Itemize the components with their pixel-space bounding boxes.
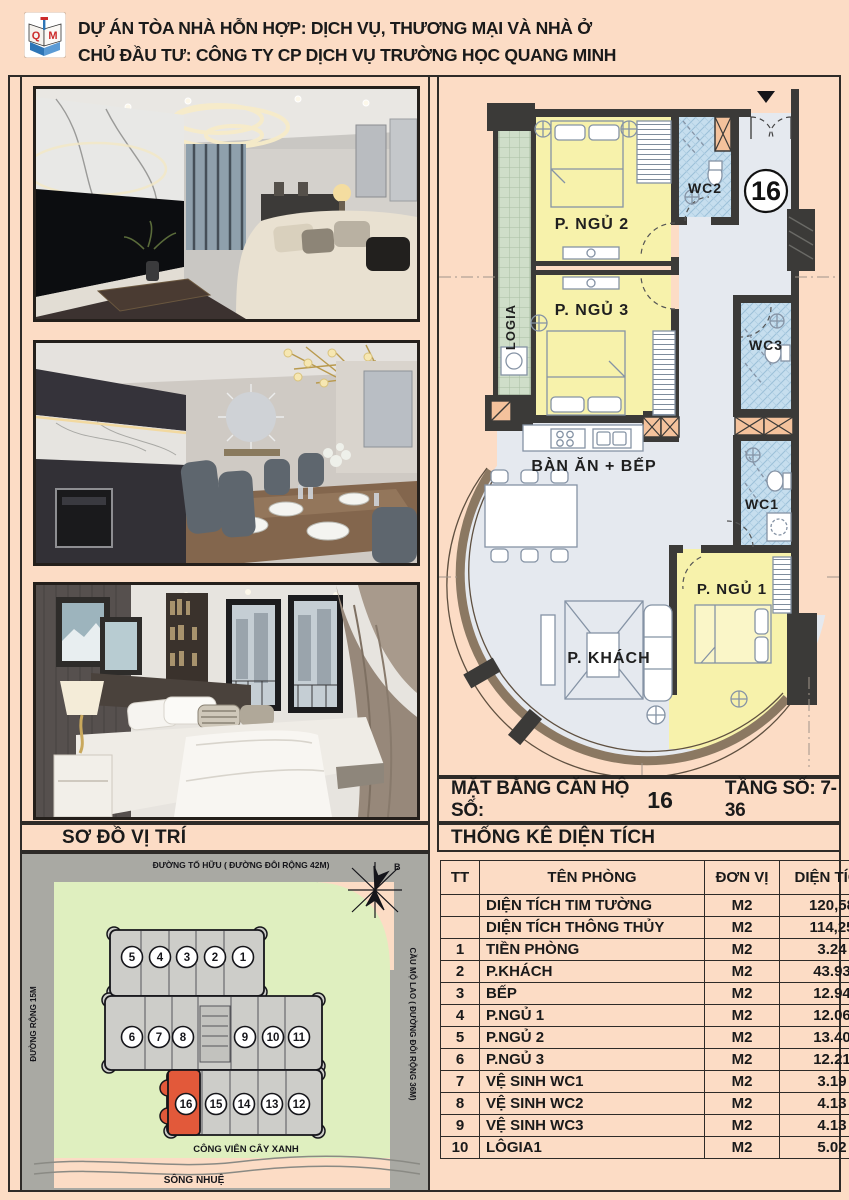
table-cell: 8 (441, 1093, 480, 1115)
plan-caption-label: MẶT BẰNG CĂN HỘ SỐ: (451, 778, 637, 822)
table-cell: M2 (705, 1049, 780, 1071)
photo-bedroom (33, 582, 420, 820)
table-cell: M2 (705, 1005, 780, 1027)
room-label-bedroom3: P. NGỦ 3 (555, 300, 629, 319)
unit-number-11: 11 (293, 1032, 306, 1044)
table-row: 5P.NGỦ 2M213.40 (441, 1027, 849, 1049)
unit-number-8: 8 (180, 1032, 187, 1044)
street-top-label: ĐƯỜNG TỐ HỮU ( ĐƯỜNG ĐÔI RỘNG 42M) (153, 859, 330, 870)
table-row: 1TIỀN PHÒNGM23.24 (441, 939, 849, 961)
project-title: DỰ ÁN TÒA NHÀ HỖN HỢP: DỊCH VỤ, THƯƠNG M… (78, 18, 592, 39)
room-label-bedroom2: P. NGỦ 2 (555, 214, 629, 233)
table-cell: M2 (705, 939, 780, 961)
table-cell: 10 (441, 1137, 480, 1159)
river-label: SÔNG NHUỆ (164, 1173, 225, 1186)
table-cell: LÔGIA1 (480, 1137, 705, 1159)
table-cell: DIỆN TÍCH THÔNG THỦY (480, 917, 705, 939)
stats-title-bar: THỐNG KÊ DIỆN TÍCH (437, 823, 841, 852)
logo-graphic: Q M (24, 12, 66, 58)
unit-number-10: 10 (267, 1032, 280, 1044)
table-cell: 5 (441, 1027, 480, 1049)
plan-caption-unit: 16 (647, 787, 673, 814)
table-cell: 3 (441, 983, 480, 1005)
table-cell: P.NGỦ 1 (480, 1005, 705, 1027)
col-header-room: TÊN PHÒNG (480, 861, 705, 895)
unit-number-1: 1 (240, 952, 247, 964)
table-cell: 9 (441, 1115, 480, 1137)
table-row: 6P.NGỦ 3M212.21 (441, 1049, 849, 1071)
table-row: DIỆN TÍCH TIM TƯỜNGM2120,58 (441, 895, 849, 917)
table-row: 7VỆ SINH WC1M23.19 (441, 1071, 849, 1093)
unit-number-14: 14 (238, 1099, 251, 1111)
table-cell: 4.13 (780, 1093, 849, 1115)
table-cell: P.KHÁCH (480, 961, 705, 983)
stat-table-wrap: TT TÊN PHÒNG ĐƠN VỊ DIỆN TÍCH DIỆN TÍCH … (440, 860, 832, 1159)
room-label-living: P. KHÁCH (567, 648, 650, 667)
site-map-drawing: B (22, 854, 428, 1190)
unit-badge-number: 16 (751, 176, 781, 206)
unit-number-5: 5 (129, 952, 136, 964)
floor-plan-drawing: 16 P. NGỦ 2 P. NGỦ 3 WC2 WC3 WC1 BÀN ĂN … (439, 77, 839, 775)
col-header-unit: ĐƠN VỊ (705, 861, 780, 895)
logo-letter-m: M (48, 30, 57, 42)
table-cell: 114,25 (780, 917, 849, 939)
stat-table: TT TÊN PHÒNG ĐƠN VỊ DIỆN TÍCH DIỆN TÍCH … (440, 860, 849, 1159)
unit-number-16: 16 (180, 1099, 193, 1111)
table-cell: 6 (441, 1049, 480, 1071)
table-cell: VỆ SINH WC1 (480, 1071, 705, 1093)
unit-number-9: 9 (242, 1032, 248, 1044)
room-label-logia: LOGIA (503, 304, 518, 350)
photo-kitchen-dining (33, 340, 420, 566)
table-row: 10LÔGIA1M25.02 (441, 1137, 849, 1159)
room-label-wc2: WC2 (688, 180, 722, 196)
table-cell: VỆ SINH WC3 (480, 1115, 705, 1137)
table-cell: 1 (441, 939, 480, 961)
table-cell: M2 (705, 917, 780, 939)
street-left-label: ĐƯỜNG RỘNG 15M (29, 986, 38, 1062)
table-cell: 2 (441, 961, 480, 983)
table-cell: M2 (705, 895, 780, 917)
table-row: 9VỆ SINH WC3M24.13 (441, 1115, 849, 1137)
company-logo: Q M (24, 12, 66, 58)
site-map-title: SƠ ĐỒ VỊ TRÍ (62, 827, 186, 849)
park-label: CÔNG VIÊN CÂY XANH (193, 1143, 299, 1155)
room-label-wc3: WC3 (749, 337, 783, 353)
table-cell: 4 (441, 1005, 480, 1027)
table-cell: 43.93 (780, 961, 849, 983)
table-cell: VỆ SINH WC2 (480, 1093, 705, 1115)
unit-number-15: 15 (210, 1099, 223, 1111)
unit-number-12: 12 (293, 1099, 306, 1111)
room-label-bedroom1: P. NGỦ 1 (697, 580, 767, 598)
table-cell: 13.40 (780, 1027, 849, 1049)
unit-number-7: 7 (156, 1032, 162, 1044)
investor-line: CHỦ ĐẦU TƯ: CÔNG TY CP DỊCH VỤ TRƯỜNG HỌ… (78, 45, 616, 66)
table-cell: 3.24 (780, 939, 849, 961)
floor-plan-panel: 16 P. NGỦ 2 P. NGỦ 3 WC2 WC3 WC1 BÀN ĂN … (437, 75, 841, 777)
stat-table-header-row: TT TÊN PHÒNG ĐƠN VỊ DIỆN TÍCH (441, 861, 849, 895)
table-cell: BẾP (480, 983, 705, 1005)
room-label-dining-kitchen: BÀN ĂN + BẾP (531, 456, 656, 475)
unit-number-3: 3 (184, 952, 190, 964)
table-cell (441, 917, 480, 939)
col-header-area: DIỆN TÍCH (780, 861, 849, 895)
unit-number-13: 13 (266, 1099, 279, 1111)
stats-title: THỐNG KÊ DIỆN TÍCH (451, 827, 655, 849)
table-cell: M2 (705, 983, 780, 1005)
table-cell: 12.94 (780, 983, 849, 1005)
table-cell: P.NGỦ 3 (480, 1049, 705, 1071)
table-cell: 4.13 (780, 1115, 849, 1137)
table-cell: TIỀN PHÒNG (480, 939, 705, 961)
table-row: DIỆN TÍCH THÔNG THỦYM2114,25 (441, 917, 849, 939)
unit-number-4: 4 (157, 952, 164, 964)
table-cell: 3.19 (780, 1071, 849, 1093)
table-row: 8VỆ SINH WC2M24.13 (441, 1093, 849, 1115)
table-cell: M2 (705, 1071, 780, 1093)
table-cell (441, 895, 480, 917)
plan-caption-floors: TẦNG SỐ: 7-36 (725, 778, 839, 822)
unit-number-6: 6 (129, 1032, 135, 1044)
table-cell: 7 (441, 1071, 480, 1093)
stat-table-body: DIỆN TÍCH TIM TƯỜNGM2120,58DIỆN TÍCH THÔ… (441, 895, 849, 1159)
table-cell: M2 (705, 961, 780, 983)
brochure-page: Q M DỰ ÁN TÒA NHÀ HỖN HỢP: DỊCH VỤ, THƯƠ… (0, 0, 849, 1200)
street-right-label: CẦU MỘ LAO ( ĐƯỜNG ĐÔI RỘNG 36M) (408, 947, 418, 1100)
site-map-panel: B (20, 852, 430, 1192)
table-row: 2P.KHÁCHM243.93 (441, 961, 849, 983)
compass-north-label: B (394, 862, 401, 872)
col-header-tt: TT (441, 861, 480, 895)
table-cell: M2 (705, 1027, 780, 1049)
table-row: 3BẾPM212.94 (441, 983, 849, 1005)
table-cell: P.NGỦ 2 (480, 1027, 705, 1049)
table-cell: DIỆN TÍCH TIM TƯỜNG (480, 895, 705, 917)
table-cell: 12.06 (780, 1005, 849, 1027)
unit-number-2: 2 (212, 952, 218, 964)
table-cell: M2 (705, 1093, 780, 1115)
logo-letter-q: Q (32, 30, 41, 42)
site-map-title-bar: SƠ ĐỒ VỊ TRÍ (20, 823, 430, 852)
table-cell: 5.02 (780, 1137, 849, 1159)
table-cell: 12.21 (780, 1049, 849, 1071)
plan-caption-bar: MẶT BẰNG CĂN HỘ SỐ: 16 TẦNG SỐ: 7-36 (437, 777, 841, 823)
table-cell: 120,58 (780, 895, 849, 917)
table-row: 4P.NGỦ 1M212.06 (441, 1005, 849, 1027)
room-label-wc1: WC1 (745, 496, 779, 512)
table-cell: M2 (705, 1137, 780, 1159)
photo-living-room (33, 86, 420, 322)
table-cell: M2 (705, 1115, 780, 1137)
